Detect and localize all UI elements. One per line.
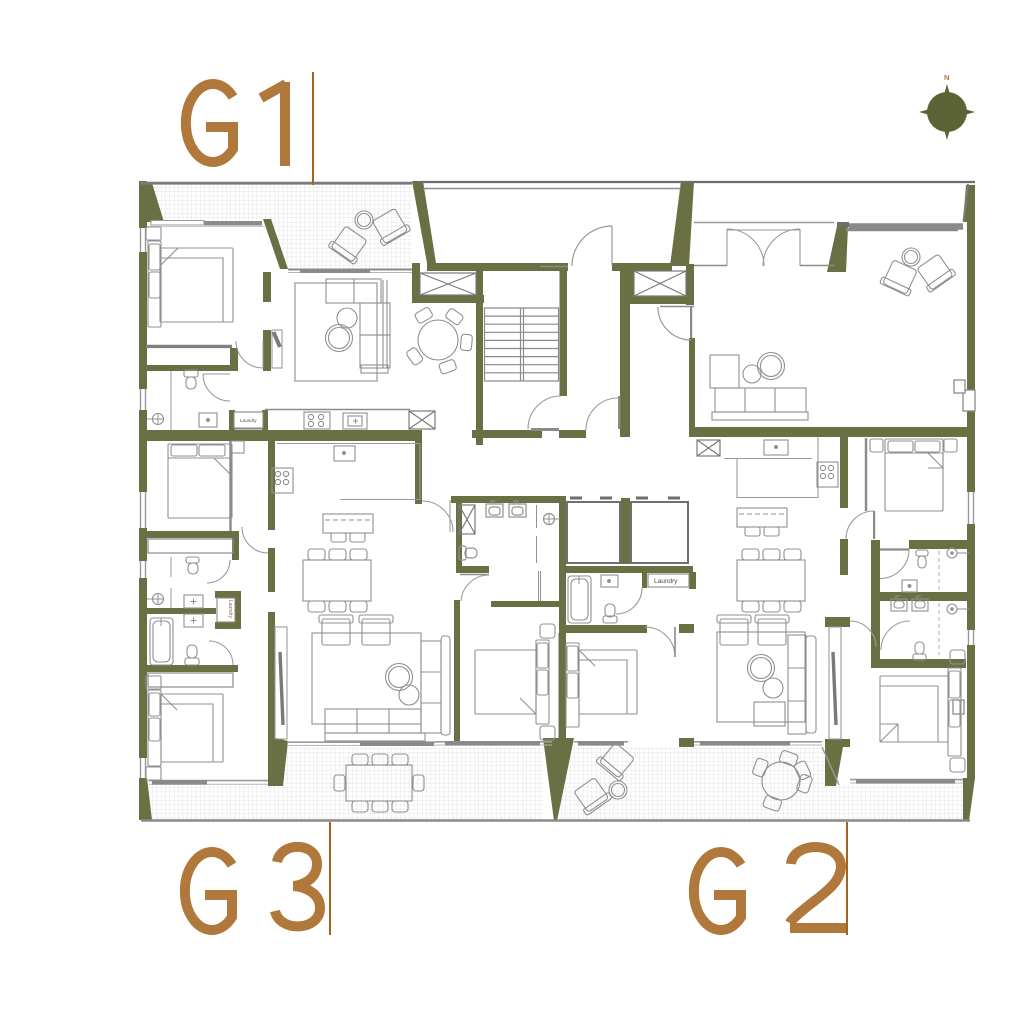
svg-text:N: N (944, 73, 949, 82)
svg-text:Laundry: Laundry (227, 600, 233, 619)
svg-text:Laundry: Laundry (240, 418, 257, 423)
svg-text:Laundry: Laundry (654, 578, 678, 585)
